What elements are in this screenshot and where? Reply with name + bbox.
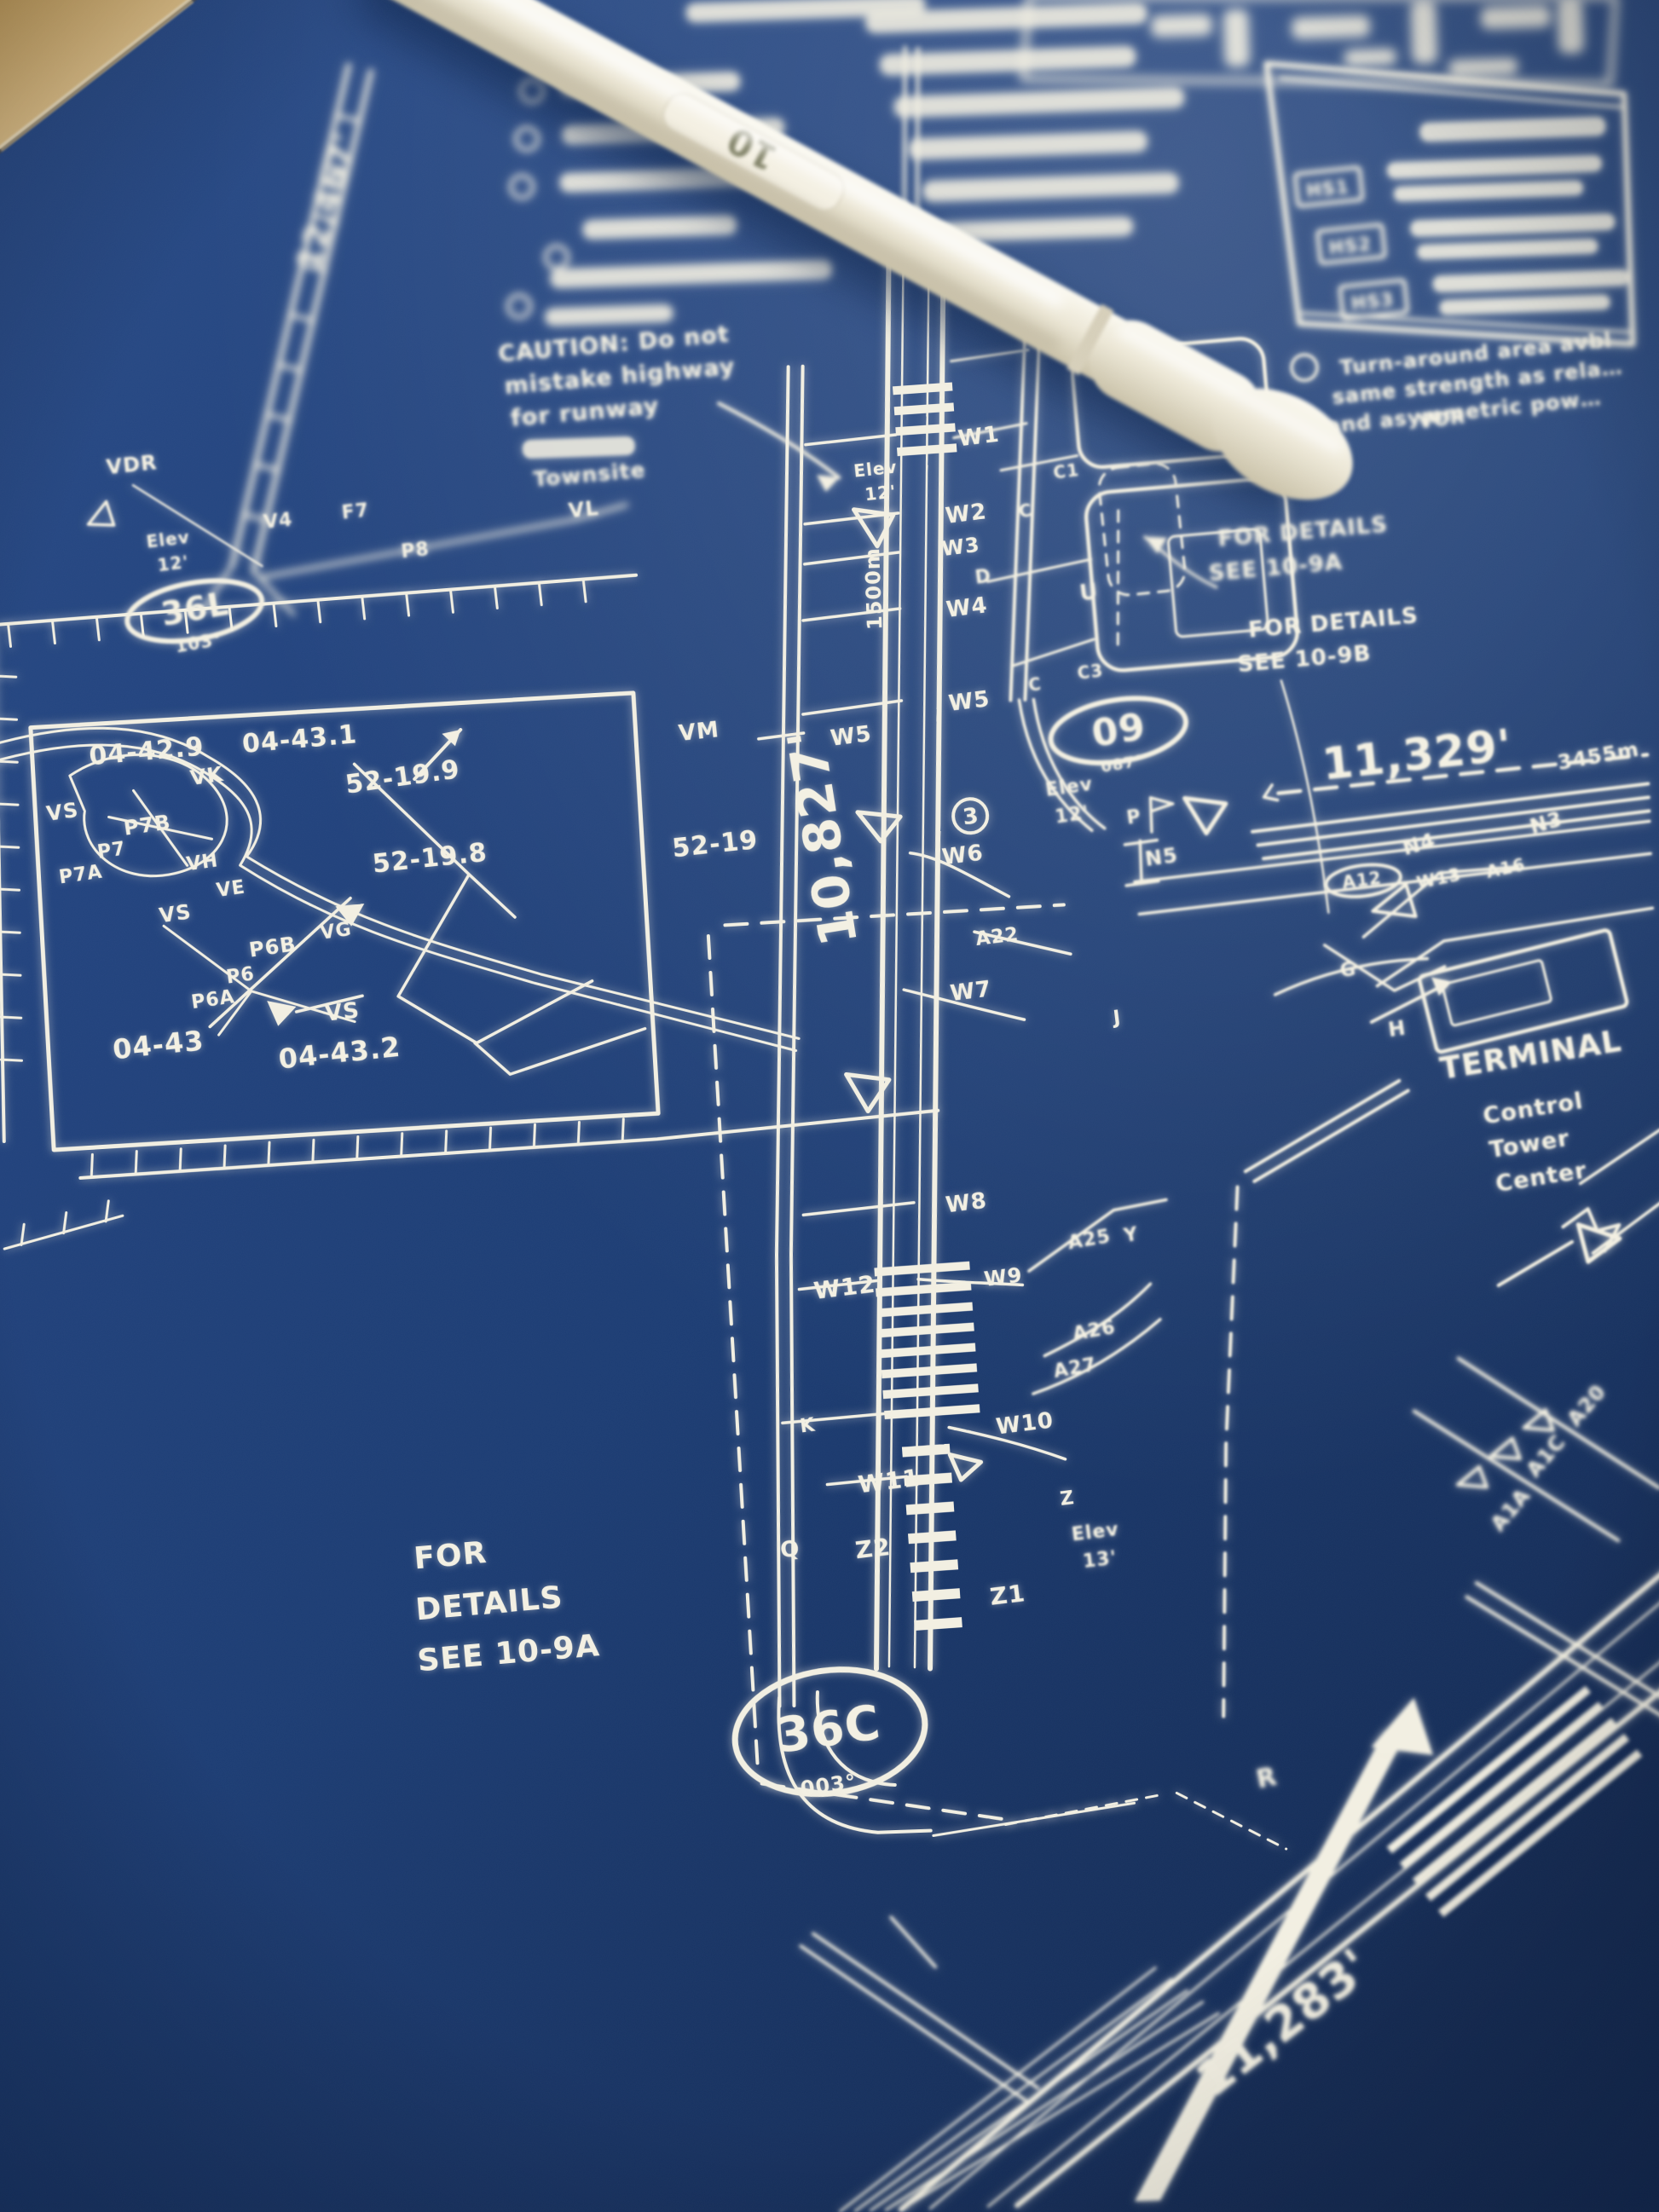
- photo-of-blueprint: CAUTION: Do not mistake highway for runw…: [0, 0, 1659, 2212]
- vignette: [0, 0, 1659, 2212]
